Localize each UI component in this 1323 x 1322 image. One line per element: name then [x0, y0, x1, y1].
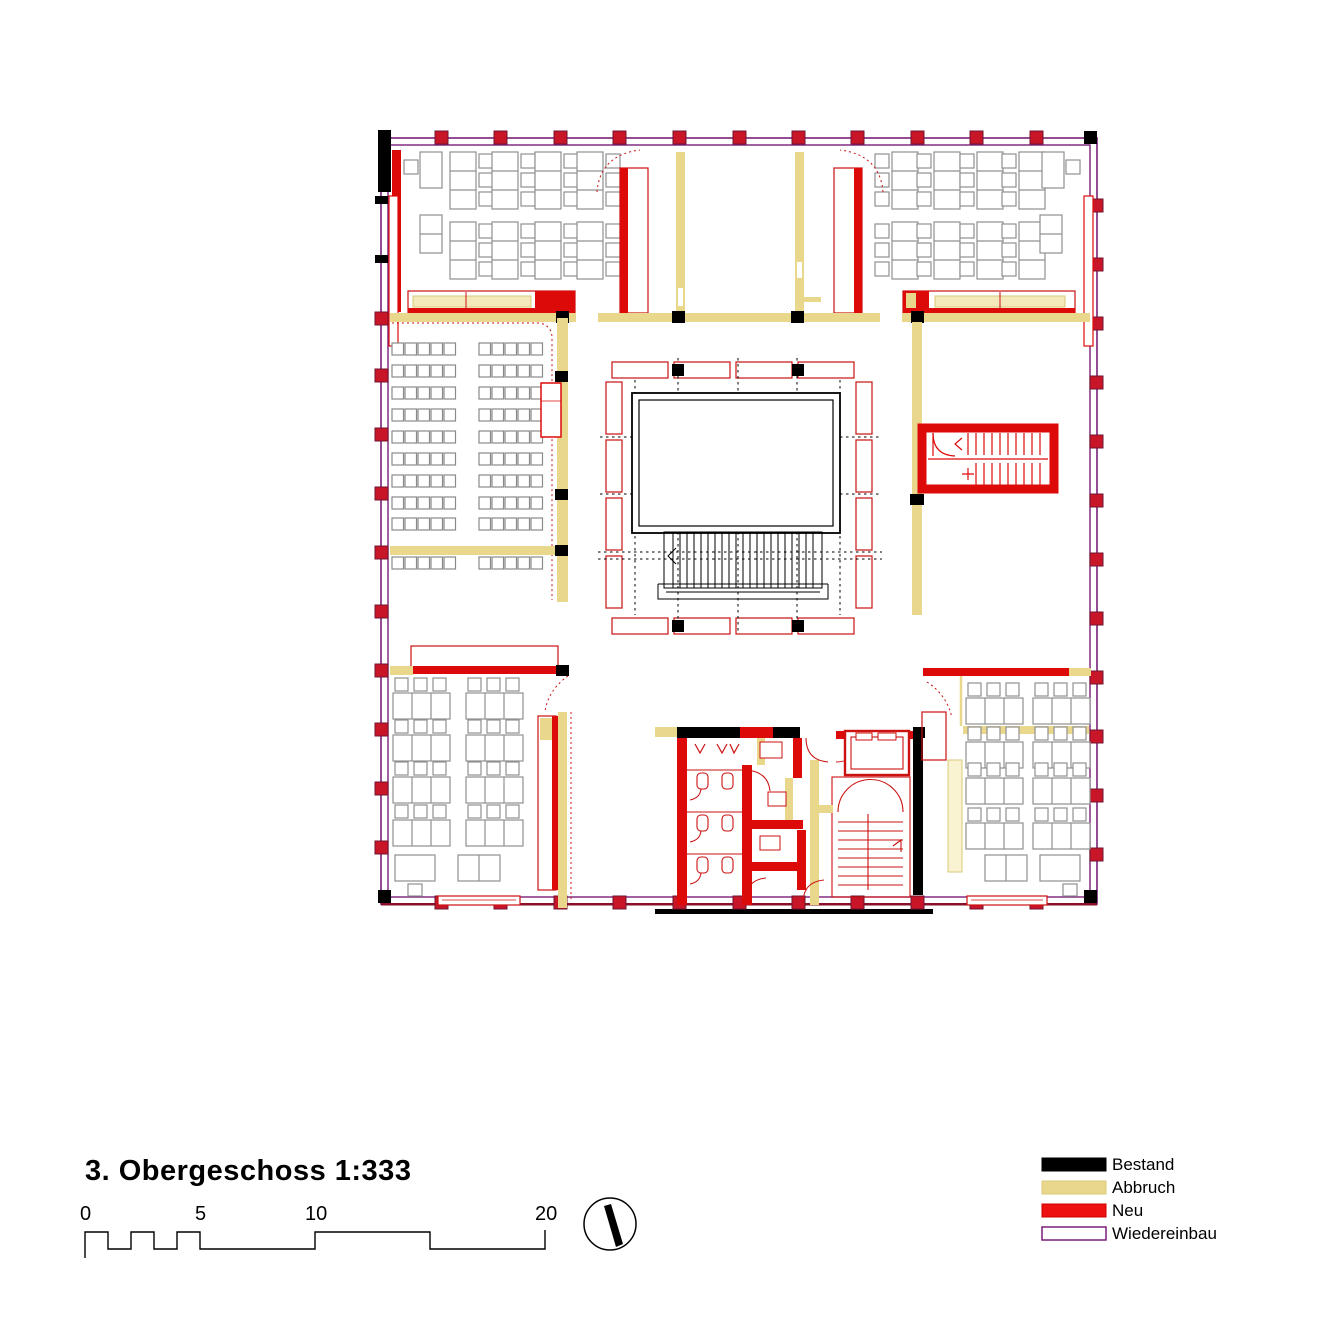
desk-rows — [875, 152, 1080, 279]
legend-row-bestand: Bestand — [1042, 1155, 1174, 1174]
drawing-sheet: 3. Obergeschoss 1:333 0 5 10 20 Bestand … — [0, 0, 1323, 1322]
wall-cabinet — [408, 291, 575, 314]
scale-label-0: 0 — [80, 1203, 91, 1225]
scale-bar: 0 5 10 20 — [80, 1203, 557, 1258]
hall-stair — [658, 532, 828, 599]
legend-swatch-neu — [1042, 1204, 1106, 1217]
elevator — [845, 731, 909, 775]
wall-cabinet — [903, 291, 1075, 314]
scale-label-20: 20 — [535, 1203, 557, 1225]
legend: Bestand Abbruch Neu Wiedereinbau — [1042, 1155, 1217, 1243]
scale-label-5: 5 — [195, 1203, 206, 1225]
corridor-top-center — [597, 150, 883, 314]
north-arrow-icon — [584, 1198, 636, 1250]
stairwell-existing — [832, 777, 910, 897]
title-block: 3. Obergeschoss 1:333 0 5 10 20 — [80, 1155, 636, 1258]
legend-row-abbruch: Abbruch — [1042, 1178, 1175, 1197]
legend-swatch-abbruch — [1042, 1181, 1106, 1194]
floor-plan-canvas: 3. Obergeschoss 1:333 0 5 10 20 Bestand … — [0, 0, 1323, 1322]
classroom-bottom-right — [913, 668, 1091, 905]
legend-swatch-wiedereinbau — [1042, 1227, 1106, 1240]
legend-swatch-bestand — [1042, 1158, 1106, 1171]
hall-outline — [632, 393, 840, 533]
wc-stalls — [687, 770, 742, 884]
classroom-bottom-left — [390, 646, 571, 908]
auditorium-left — [390, 318, 568, 602]
legend-label-wiedereinbau: Wiedereinbau — [1112, 1224, 1217, 1243]
legend-label-neu: Neu — [1112, 1201, 1143, 1220]
desk-rows — [393, 678, 523, 896]
legend-label-abbruch: Abbruch — [1112, 1178, 1175, 1197]
desk-rows — [966, 683, 1090, 896]
staircase-right-new — [910, 322, 1054, 615]
scale-label-10: 10 — [305, 1203, 327, 1225]
central-hall — [598, 358, 882, 634]
scale-bar-line — [85, 1230, 545, 1258]
wc-block-center — [655, 727, 913, 905]
legend-row-wiedereinbau: Wiedereinbau — [1042, 1224, 1217, 1243]
legend-row-neu: Neu — [1042, 1201, 1143, 1220]
chair-rows — [392, 343, 543, 569]
page-title: 3. Obergeschoss 1:333 — [85, 1155, 411, 1187]
desk-rows — [404, 152, 620, 279]
legend-label-bestand: Bestand — [1112, 1155, 1174, 1174]
